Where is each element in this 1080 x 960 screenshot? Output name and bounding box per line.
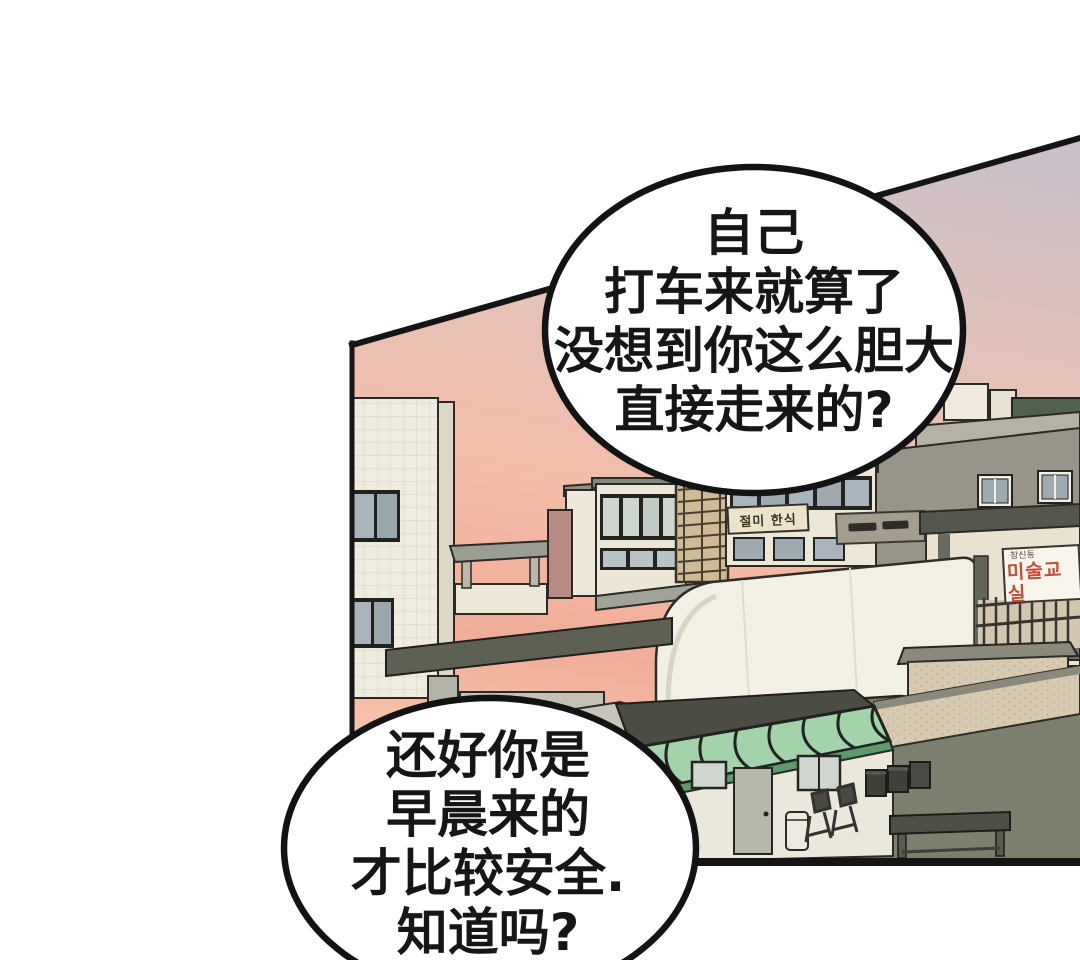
window	[350, 598, 394, 648]
sign-art-class: 창신동 미술교실	[1002, 544, 1080, 604]
bubble-line: 打车来就算了	[554, 263, 954, 322]
window	[978, 475, 1012, 507]
bubble-line: 自己	[554, 204, 954, 263]
sign-restaurant-text: 절미 한식	[739, 508, 797, 529]
hut-window	[692, 762, 726, 788]
bubble-line: 没想到你这么胆大	[554, 322, 954, 381]
bubble-line: 还好你是	[351, 727, 625, 786]
speech-bubble-bottom-text: 还好你是 早晨来的 才比较安全. 知道吗?	[351, 727, 625, 960]
bubble-line: 知道吗?	[351, 904, 625, 960]
hut-window	[798, 756, 840, 790]
sign-illegible	[836, 511, 925, 544]
window	[1038, 471, 1072, 503]
window	[350, 490, 400, 542]
bubble-line: 才比较安全.	[351, 845, 625, 904]
speech-bubble-top-text: 自己 打车来就算了 没想到你这么胆大 直接走来的?	[554, 204, 954, 440]
comic-page: 절미 한식 창신동 미술교실 自己 打车来就算了 没想到你这么胆大 直接走来的?…	[0, 0, 1080, 960]
sign-art-class-main-text: 미술교실	[1006, 558, 1078, 606]
trash-can	[786, 812, 808, 850]
hut-door	[734, 768, 772, 854]
bubble-line: 直接走来的?	[554, 381, 954, 440]
bubble-line: 早晨来的	[351, 786, 625, 845]
sign-restaurant: 절미 한식	[726, 503, 809, 535]
